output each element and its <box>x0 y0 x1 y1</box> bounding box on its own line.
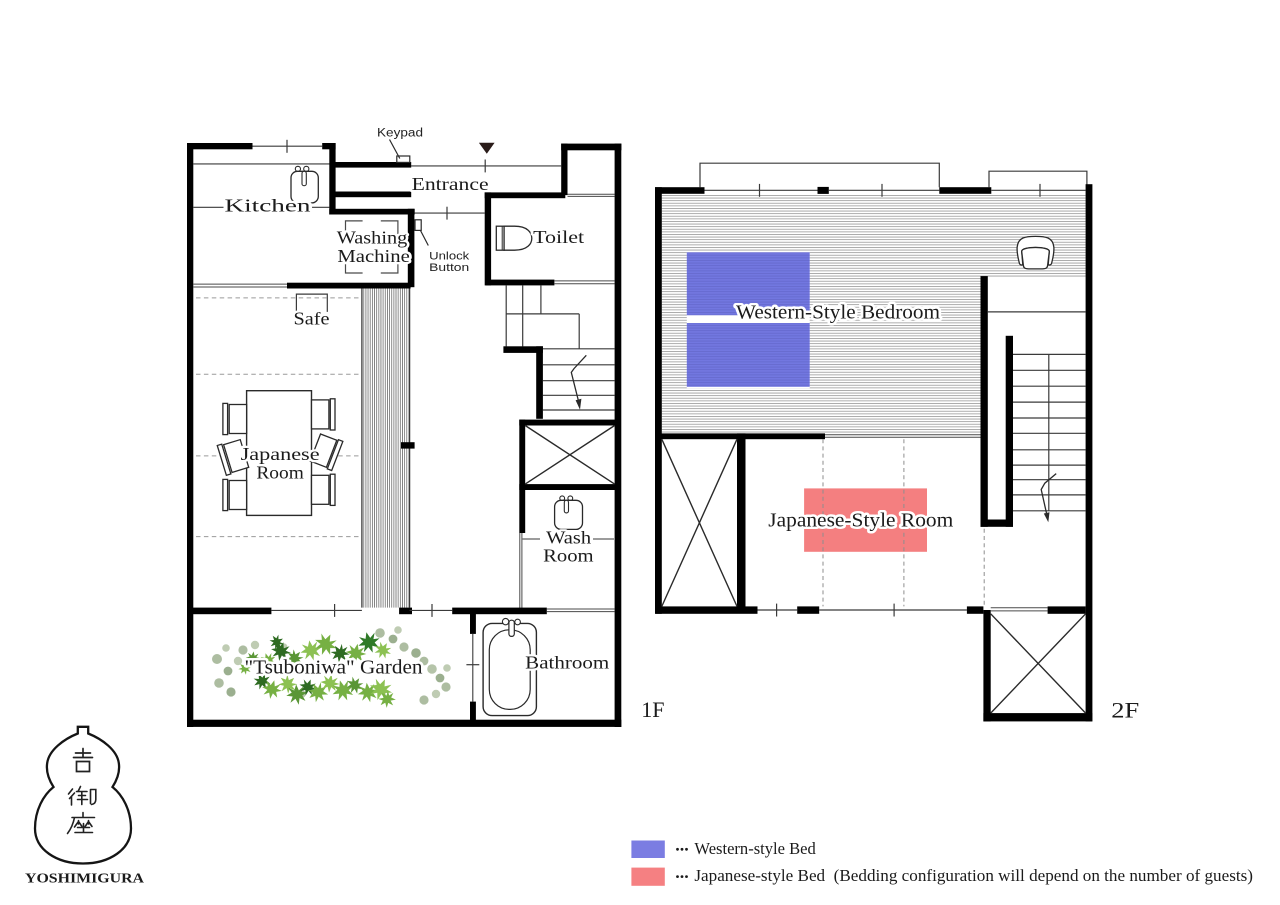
svg-text:"Tsuboniwa" Garden: "Tsuboniwa" Garden <box>245 657 423 678</box>
svg-text:Japanese-style Bed (Bedding c: Japanese-style Bed (Bedding configuratio… <box>694 866 1253 885</box>
svg-text:Entrance: Entrance <box>412 174 489 194</box>
svg-text:Unlock: Unlock <box>429 251 469 263</box>
svg-text:YOSHIMIGURA: YOSHIMIGURA <box>25 872 145 887</box>
svg-text:Japanese: Japanese <box>241 444 320 464</box>
svg-text:Western-style Bed: Western-style Bed <box>694 839 816 858</box>
svg-text:Safe: Safe <box>294 308 330 328</box>
svg-text:1F: 1F <box>641 697 664 722</box>
svg-text:Button: Button <box>429 262 469 274</box>
svg-text:Japanese-Style Room: Japanese-Style Room <box>768 510 953 531</box>
svg-text:Bathroom: Bathroom <box>525 652 609 672</box>
svg-text:Toilet: Toilet <box>533 227 584 247</box>
svg-text:Washing: Washing <box>337 228 408 248</box>
svg-text:Keypad: Keypad <box>377 128 423 140</box>
svg-text:Western-Style Bedroom: Western-Style Bedroom <box>736 302 940 323</box>
svg-text:Room: Room <box>543 545 594 565</box>
svg-text:Room: Room <box>256 462 304 482</box>
svg-text:2F: 2F <box>1111 698 1139 723</box>
svg-text:Kitchen: Kitchen <box>225 196 311 216</box>
svg-text:Machine: Machine <box>337 246 410 266</box>
svg-text:Wash: Wash <box>546 527 591 547</box>
